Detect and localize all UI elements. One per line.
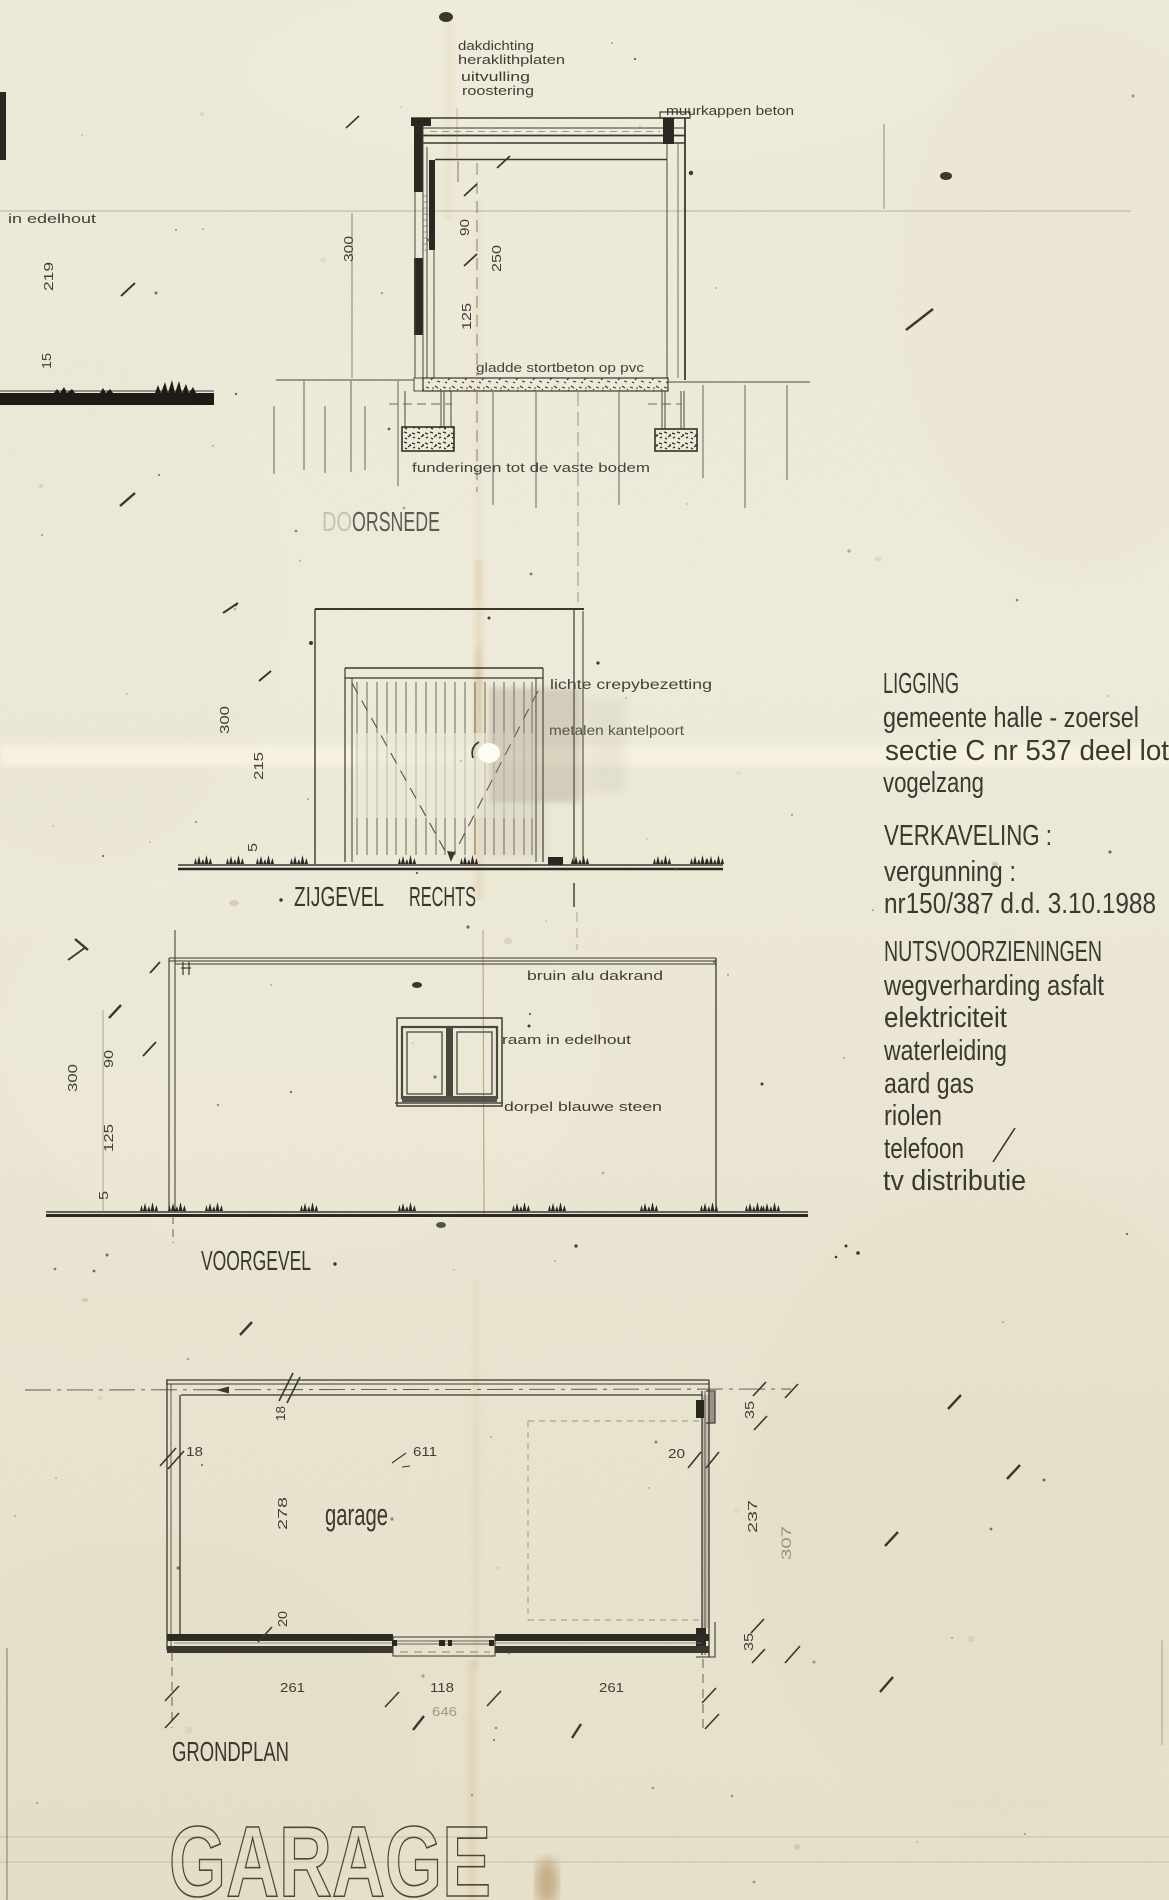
svg-text:dakdichting: dakdichting: [458, 38, 534, 53]
svg-text:300: 300: [341, 236, 356, 262]
svg-text:ZIJGEVEL: ZIJGEVEL: [294, 881, 384, 912]
svg-text:raam in edelhout: raam in edelhout: [502, 1032, 632, 1047]
svg-text:90: 90: [457, 219, 472, 236]
svg-text:15: 15: [39, 353, 54, 369]
svg-text:dorpel blauwe steen: dorpel blauwe steen: [504, 1099, 662, 1114]
svg-text:riolen: riolen: [884, 1100, 942, 1132]
svg-text:20: 20: [275, 1611, 290, 1627]
svg-text:20: 20: [668, 1446, 685, 1461]
svg-text:261: 261: [280, 1680, 305, 1695]
svg-text:VERKAVELING :: VERKAVELING :: [884, 820, 1052, 852]
svg-text:uitvulling: uitvulling: [461, 69, 530, 84]
svg-text:tv distributie: tv distributie: [883, 1165, 1026, 1197]
svg-text:118: 118: [430, 1680, 454, 1695]
svg-text:219: 219: [41, 262, 56, 291]
svg-text:metalen kantelpoort: metalen kantelpoort: [549, 723, 684, 738]
svg-text:611: 611: [413, 1444, 437, 1459]
svg-text:bruin alu dakrand: bruin alu dakrand: [527, 968, 663, 983]
svg-text:35: 35: [741, 1633, 756, 1651]
svg-text:GARAGE: GARAGE: [169, 1806, 491, 1900]
svg-text:vogelzang: vogelzang: [883, 767, 984, 799]
svg-text:215: 215: [251, 752, 266, 780]
svg-text:funderingen tot de vaste bodem: funderingen tot de vaste bodem: [412, 461, 650, 475]
svg-text:muurkappen beton: muurkappen beton: [666, 103, 794, 118]
svg-text:125: 125: [101, 1124, 116, 1152]
svg-text:GRONDPLAN: GRONDPLAN: [172, 1736, 289, 1767]
svg-text:RECHTS: RECHTS: [409, 881, 476, 912]
svg-text:261: 261: [599, 1680, 624, 1695]
svg-text:gladde stortbeton op pvc: gladde stortbeton op pvc: [476, 361, 644, 375]
svg-text:in edelhout: in edelhout: [8, 211, 97, 226]
svg-text:waterleiding: waterleiding: [883, 1035, 1007, 1067]
svg-text:elektriciteit: elektriciteit: [884, 1002, 1007, 1034]
svg-text:nr150/387 d.d. 3.10.1988: nr150/387 d.d. 3.10.1988: [884, 888, 1156, 920]
svg-text:telefoon: telefoon: [884, 1133, 964, 1165]
svg-text:wegverharding asfalt: wegverharding asfalt: [883, 970, 1104, 1002]
svg-text:ORSNEDE: ORSNEDE: [352, 506, 440, 537]
svg-text:5: 5: [96, 1191, 111, 1200]
svg-text:18: 18: [186, 1444, 203, 1459]
svg-text:LIGGING: LIGGING: [883, 668, 959, 700]
svg-text:garage: garage: [325, 1497, 388, 1532]
svg-text:roostering: roostering: [462, 83, 534, 98]
svg-text:gemeente halle - zoersel: gemeente halle - zoersel: [883, 702, 1139, 734]
svg-text:heraklithplaten: heraklithplaten: [458, 52, 565, 67]
svg-text:300: 300: [217, 706, 232, 734]
svg-text:lichte crepybezetting: lichte crepybezetting: [550, 677, 712, 692]
svg-text:NUTSVOORZIENINGEN: NUTSVOORZIENINGEN: [884, 936, 1102, 968]
svg-text:125: 125: [459, 303, 474, 330]
svg-text:278: 278: [275, 1497, 290, 1530]
svg-text:vergunning :: vergunning :: [884, 856, 1016, 888]
svg-text:307: 307: [778, 1526, 794, 1560]
svg-text:18: 18: [273, 1406, 288, 1421]
svg-text:VOORGEVEL: VOORGEVEL: [201, 1245, 311, 1276]
svg-text:250: 250: [489, 245, 504, 272]
svg-text:5: 5: [245, 843, 260, 852]
svg-text:237: 237: [745, 1500, 760, 1533]
svg-text:35: 35: [742, 1401, 757, 1419]
svg-text:sectie C nr 537 deel lot: sectie C nr 537 deel lot: [885, 735, 1169, 767]
svg-text:300: 300: [65, 1064, 80, 1092]
svg-text:aard gas: aard gas: [884, 1068, 974, 1100]
svg-text:DO: DO: [322, 506, 352, 537]
svg-text:646: 646: [432, 1704, 457, 1719]
svg-text:90: 90: [101, 1050, 116, 1068]
